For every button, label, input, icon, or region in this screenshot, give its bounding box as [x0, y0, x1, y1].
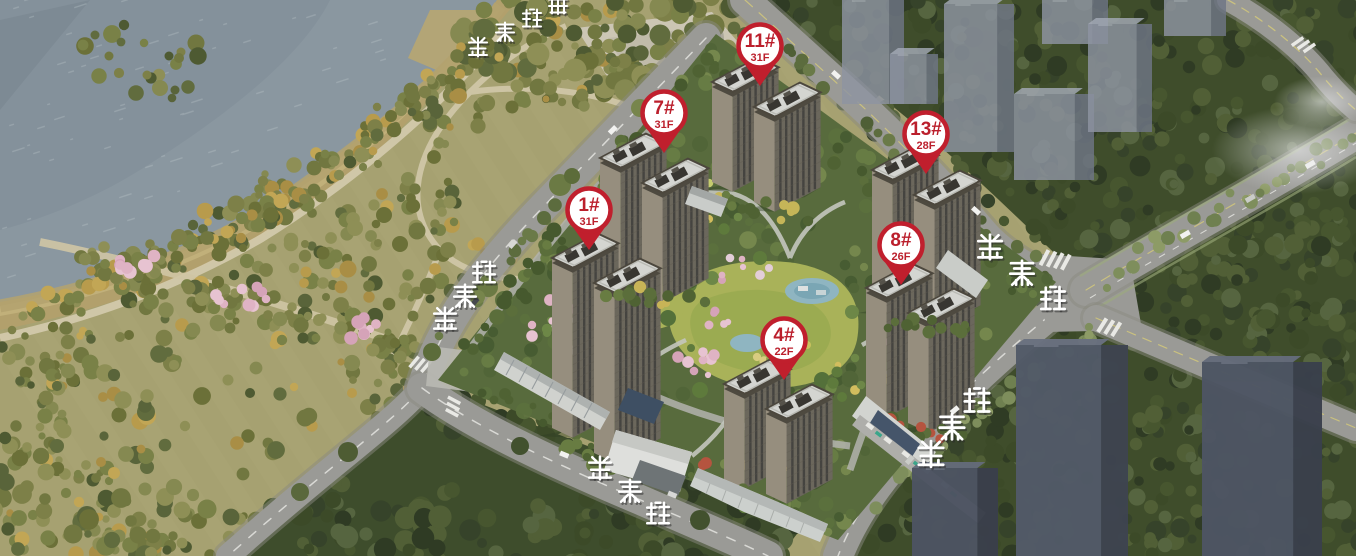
svg-text:7#: 7# [653, 98, 675, 119]
svg-text:22F: 22F [775, 346, 794, 358]
svg-text:13#: 13# [910, 119, 942, 140]
svg-text:31F: 31F [751, 52, 770, 64]
svg-text:4#: 4# [773, 325, 795, 346]
svg-text:11#: 11# [745, 31, 776, 52]
svg-text:8#: 8# [890, 230, 912, 251]
svg-text:26F: 26F [892, 251, 911, 263]
svg-text:31F: 31F [655, 119, 674, 131]
svg-text:1#: 1# [578, 195, 600, 216]
svg-text:28F: 28F [917, 140, 936, 152]
svg-text:31F: 31F [580, 216, 599, 228]
